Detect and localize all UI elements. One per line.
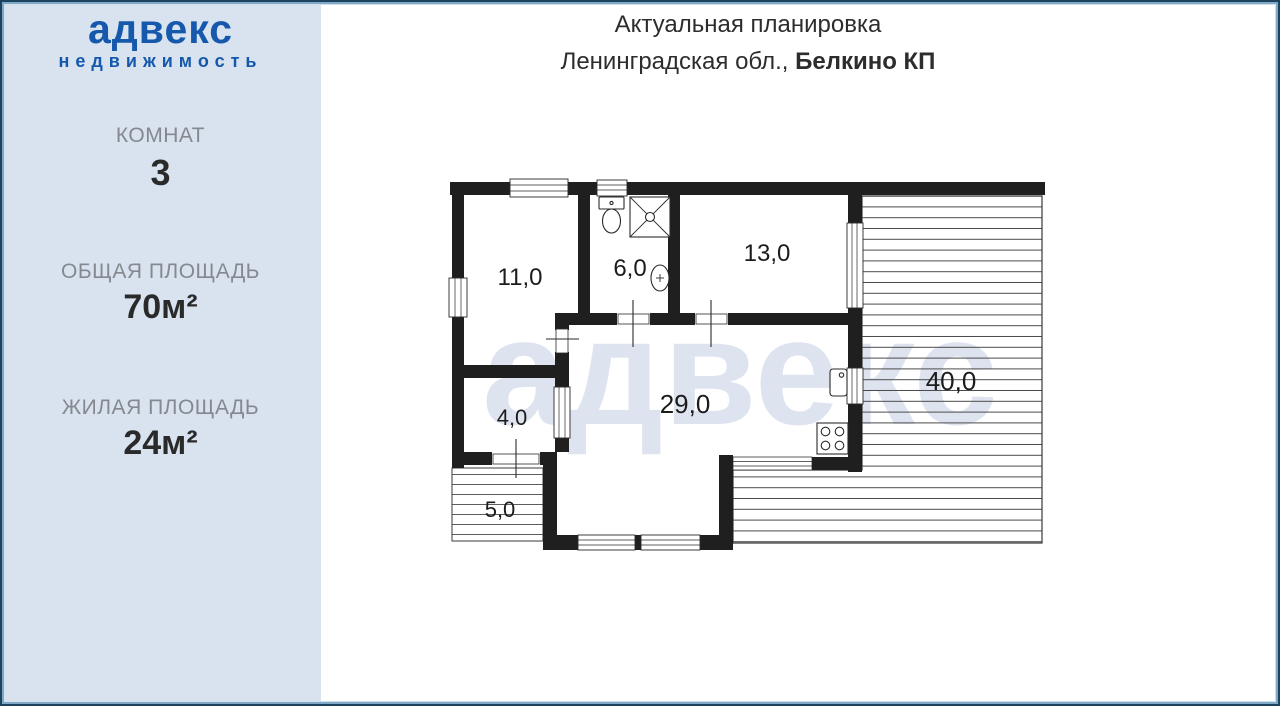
stat-rooms-value: 3 [0,152,321,194]
stat-total-area-label: ОБЩАЯ ПЛОЩАДЬ [0,260,321,284]
stat-rooms-label: КОМНАТ [0,124,321,148]
floorplan-drawing: 11,0 6,0 13,0 4,0 29,0 40,0 5,0 [445,175,1045,555]
listing-floorplan-page: адвекс недвижимость КОМНАТ 3 ОБЩАЯ ПЛОЩА… [0,0,1280,706]
brand-logo-text: адвекс [0,9,321,50]
room-area-label: 13,0 [744,240,791,267]
sidebar: адвекс недвижимость КОМНАТ 3 ОБЩАЯ ПЛОЩА… [0,0,321,706]
room-area-label: 5,0 [485,497,516,522]
toilet-icon [599,197,624,233]
room-area-label: 4,0 [497,405,528,430]
shower-icon [630,197,670,237]
stat-total-area-value: 70м² [0,288,321,327]
stat-living-area: ЖИЛАЯ ПЛОЩАДЬ 24м² [0,396,321,463]
deck-steps [733,457,812,470]
room-area-label: 6,0 [613,255,646,282]
room-area-label: 29,0 [660,389,711,419]
kitchen-sink-icon [830,369,847,396]
page-title: Актуальная планировка [322,11,1174,39]
room-area-label: 11,0 [498,264,543,291]
page-subtitle: Ленинградская обл., Белкино КП [322,48,1174,76]
stat-living-area-value: 24м² [0,424,321,463]
location-name: Белкино КП [795,48,935,75]
room-area-label: 40,0 [926,366,977,396]
brand-logo-tagline: недвижимость [0,51,321,72]
stat-rooms: КОМНАТ 3 [0,124,321,194]
stat-total-area: ОБЩАЯ ПЛОЩАДЬ 70м² [0,260,321,327]
location-text: Ленинградская обл., [561,48,796,75]
stove-icon [817,423,848,454]
stat-living-area-label: ЖИЛАЯ ПЛОЩАДЬ [0,396,321,420]
brand-logo: адвекс недвижимость [0,9,321,72]
sink-icon [651,265,669,291]
